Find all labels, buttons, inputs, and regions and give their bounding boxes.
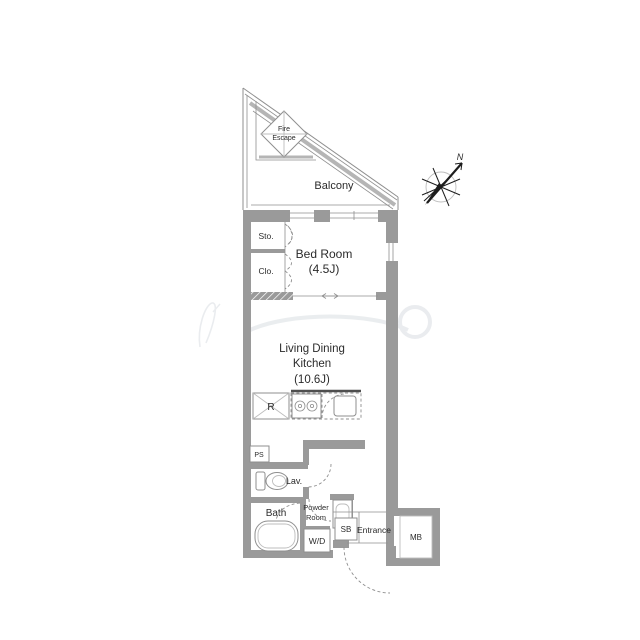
shoe-box: SB — [335, 518, 357, 540]
ldk-label-line2: Kitchen — [293, 358, 331, 370]
sink-icon — [334, 396, 356, 416]
washer-dryer-label: W/D — [309, 536, 326, 546]
refrigerator: R — [253, 393, 289, 419]
pipe-space-label: PS — [254, 452, 264, 459]
entrance-label: Entrance — [357, 525, 391, 535]
lavatory-door-arc — [308, 464, 331, 487]
entrance-area: SB Entrance MB — [333, 512, 432, 593]
stove — [292, 394, 321, 418]
wall-hall-top — [303, 440, 365, 449]
pipe-space-box: PS — [250, 446, 269, 462]
bedroom-size-label: (4.5J) — [309, 262, 340, 276]
ldk-label-line1: Living Dining — [279, 343, 345, 355]
wall-mb-right — [432, 508, 440, 566]
north-label: N — [457, 152, 464, 162]
wall-lav-bath-divider — [251, 497, 305, 503]
wall-lav-top — [243, 462, 308, 469]
powder-room-label-line1: Powder — [303, 503, 329, 512]
wall-top-left — [243, 210, 290, 222]
storage-label: Sto. — [258, 231, 273, 241]
lavatory-label: Lav. — [286, 476, 302, 486]
wall-right-upper — [386, 210, 398, 243]
washer-dryer-box: W/D — [304, 529, 330, 552]
sliding-door — [293, 294, 378, 299]
closet-label: Clo. — [258, 266, 273, 276]
wall-top-pier — [314, 210, 330, 222]
toilet-icon — [256, 472, 288, 490]
bath-area: Bath (1216) — [255, 503, 300, 551]
balcony-area: Fire Escape Balcony — [243, 88, 398, 210]
wall-hall-left-upper — [303, 440, 309, 465]
ldk-area: Living Dining Kitchen (10.6J) — [279, 343, 345, 386]
compass-rose: N — [422, 152, 464, 206]
wall-entrance-left-stub — [333, 540, 349, 548]
bedroom-area: Sto. Clo. Bed Room (4.5J) — [258, 222, 378, 299]
meter-box: MB — [400, 516, 432, 558]
meter-box-label: MB — [410, 533, 422, 542]
floor-plan: Fire Escape Balcony N — [0, 0, 640, 640]
kitchen-counter: R — [253, 391, 361, 419]
wall-left — [243, 210, 251, 558]
powder-room-label-line2: Room — [306, 513, 326, 522]
wall-partition-hatch — [251, 292, 293, 300]
wall-mb-bottom — [394, 558, 440, 566]
bath-label: Bath — [266, 508, 287, 519]
floor-plan-canvas: Fire Escape Balcony N — [0, 0, 640, 640]
bathtub-icon — [255, 521, 298, 551]
entrance-door-arc — [344, 547, 390, 593]
wall-sto-clo-divider — [251, 249, 285, 253]
bedroom-label: Bed Room — [296, 247, 353, 261]
ldk-size-label: (10.6J) — [294, 374, 330, 386]
wall-partition-stub — [376, 292, 398, 300]
shoe-box-label: SB — [341, 525, 352, 534]
fire-escape-label-line2: Escape — [272, 135, 295, 142]
closet-folding-doors — [285, 224, 293, 289]
balcony-label: Balcony — [314, 180, 354, 192]
refrigerator-label: R — [267, 402, 274, 413]
fire-escape-label-line1: Fire — [278, 126, 290, 133]
